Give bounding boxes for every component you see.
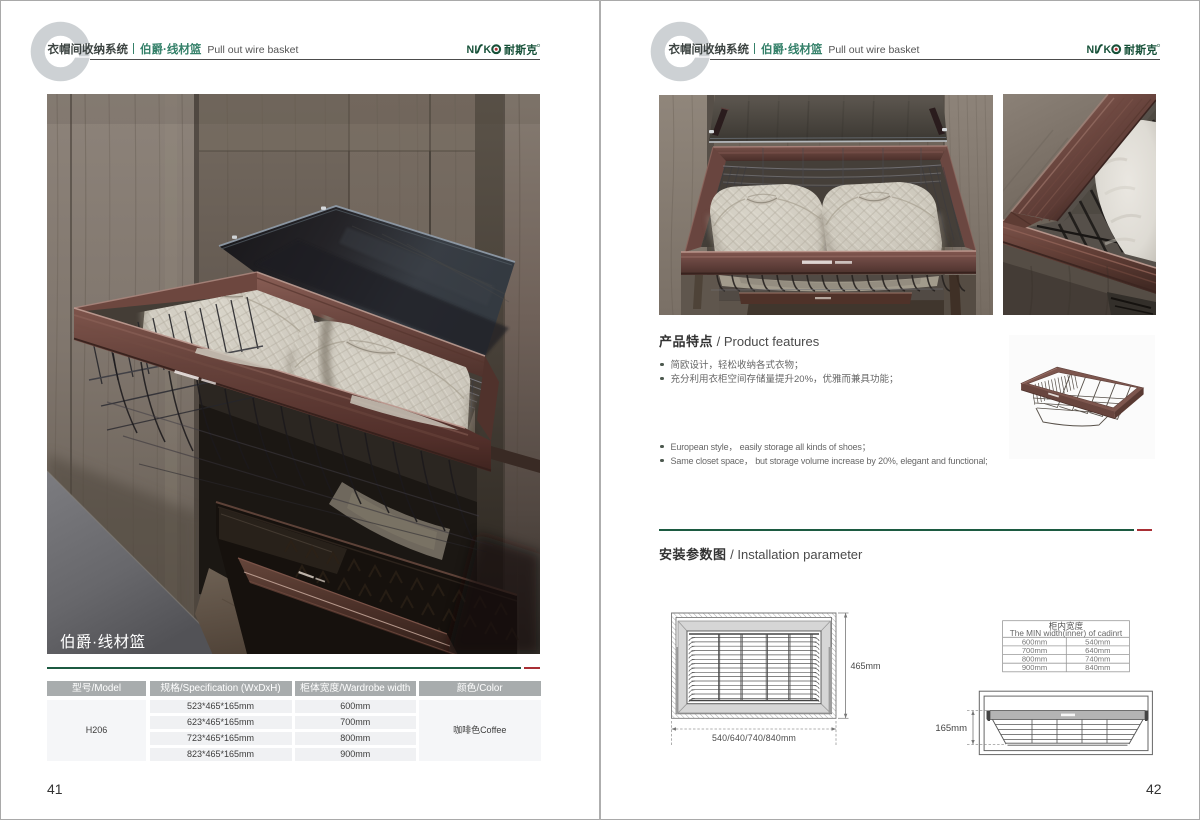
svg-text:165mm: 165mm: [935, 723, 967, 734]
svg-text:NI: NI: [1087, 44, 1098, 56]
svg-text:640mm: 640mm: [1085, 646, 1110, 655]
svg-text:540/640/740/840mm: 540/640/740/840mm: [712, 733, 796, 743]
svg-text:700mm: 700mm: [1022, 646, 1047, 655]
svg-text:耐斯克: 耐斯克: [1124, 42, 1158, 56]
svg-text:NI: NI: [467, 44, 478, 56]
svg-text:耐斯克: 耐斯克: [504, 42, 538, 56]
svg-text:K: K: [1104, 44, 1112, 56]
svg-text:465mm: 465mm: [851, 661, 881, 671]
svg-text:K: K: [484, 44, 492, 56]
svg-text:840mm: 840mm: [1085, 663, 1110, 672]
svg-text:900mm: 900mm: [1022, 663, 1047, 672]
